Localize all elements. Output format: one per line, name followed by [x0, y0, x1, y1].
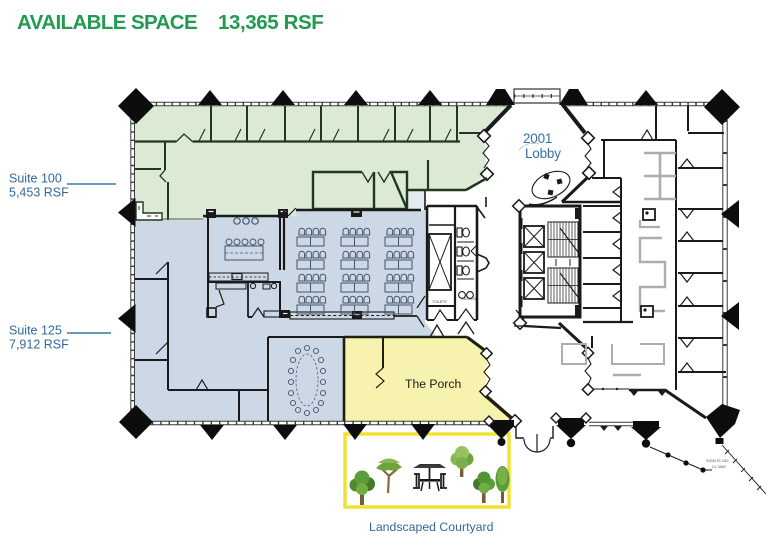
svg-text:5,453 RSF: 5,453 RSF — [9, 186, 69, 200]
svg-text:AVAILABLE SPACE: AVAILABLE SPACE — [17, 11, 197, 34]
svg-text:13,365 RSF: 13,365 RSF — [218, 11, 323, 34]
svg-text:TOILETS: TOILETS — [432, 300, 447, 304]
svg-text:Landscaped Courtyard: Landscaped Courtyard — [369, 520, 494, 534]
svg-text:SIGN IS 100: SIGN IS 100 — [706, 458, 729, 463]
svg-text:Lobby: Lobby — [525, 146, 561, 161]
svg-text:7,912 RSF: 7,912 RSF — [9, 338, 69, 352]
svg-text:Suite 125: Suite 125 — [9, 324, 62, 338]
svg-text:Suite 100: Suite 100 — [9, 172, 62, 186]
svg-text:The Porch: The Porch — [405, 377, 461, 391]
svg-text:WOMEN: WOMEN — [462, 297, 476, 301]
svg-text:CL MAT: CL MAT — [712, 464, 727, 469]
